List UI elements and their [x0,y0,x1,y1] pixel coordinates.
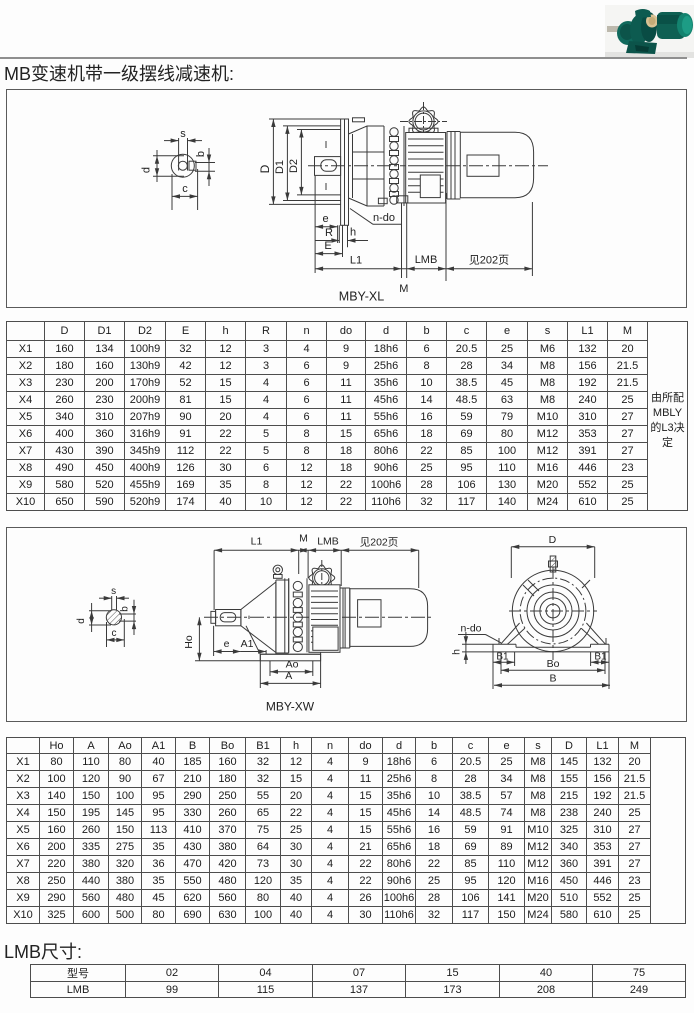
svg-text:A: A [285,670,292,682]
svg-text:d: d [141,167,153,173]
svg-text:MBY-XL: MBY-XL [339,290,384,304]
svg-text:D: D [549,534,557,546]
svg-text:c: c [112,628,117,639]
svg-text:D: D [258,164,272,173]
svg-text:B: B [549,672,556,684]
svg-text:Ho: Ho [183,635,195,649]
svg-text:R: R [325,227,333,239]
svg-text:B1: B1 [496,652,509,663]
svg-text:n-do: n-do [373,212,395,224]
svg-text:h: h [350,227,356,239]
svg-text:n-do: n-do [460,623,481,635]
svg-text:D2: D2 [288,159,300,173]
svg-text:b: b [120,606,131,612]
svg-text:E: E [324,240,331,252]
svg-text:LMB: LMB [317,536,339,548]
svg-text:Ao: Ao [286,659,299,671]
svg-text:s: s [180,128,186,140]
svg-text:A1: A1 [241,638,254,650]
svg-text:Bo: Bo [547,658,560,670]
svg-text:MBY-XW: MBY-XW [266,700,315,714]
svg-text:c: c [182,183,188,195]
svg-text:D1: D1 [274,160,286,174]
svg-text:L1: L1 [251,536,263,548]
svg-text:M: M [399,283,408,295]
svg-text:见202页: 见202页 [469,255,509,267]
svg-text:b: b [195,151,207,157]
svg-text:e: e [322,213,328,225]
svg-text:LMB: LMB [415,254,438,266]
svg-text:M: M [299,533,308,545]
svg-text:h: h [450,649,462,655]
svg-text:L1: L1 [350,255,362,267]
svg-text:s: s [111,586,116,597]
svg-text:d: d [76,618,87,624]
svg-text:见202页: 见202页 [360,537,399,549]
svg-text:e: e [224,638,230,650]
